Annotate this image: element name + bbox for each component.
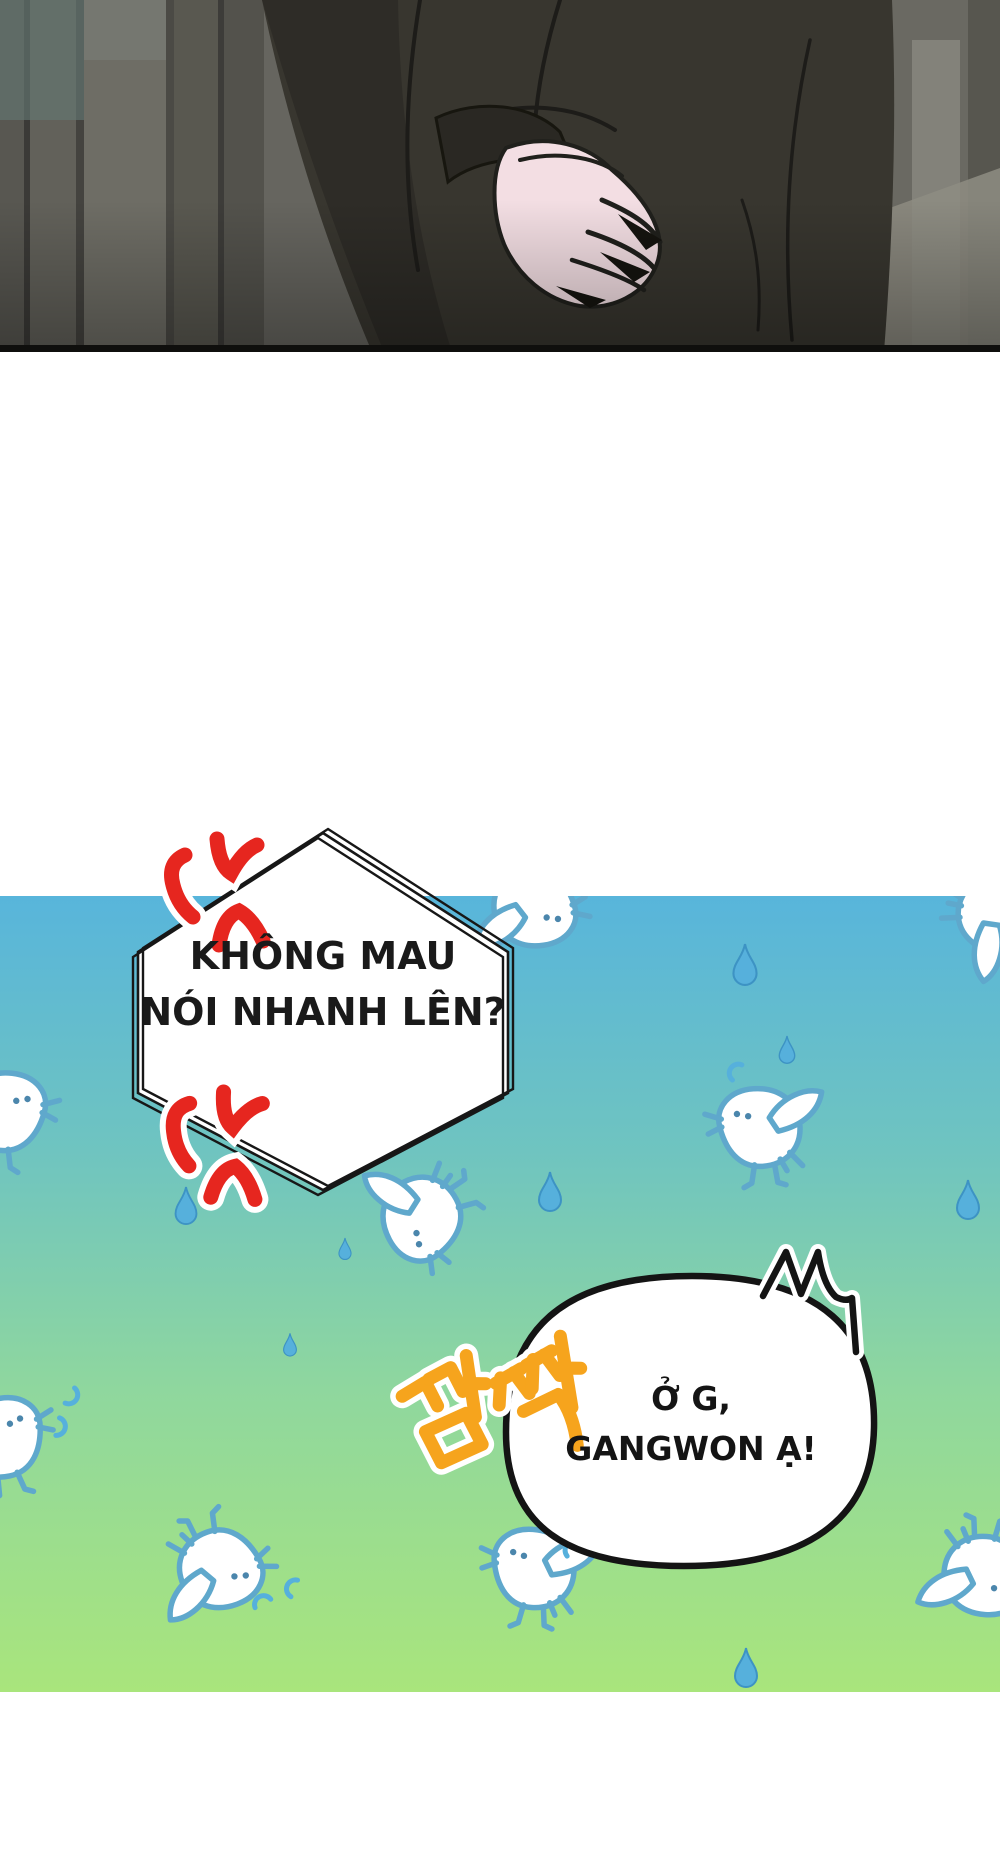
comic-page: KHÔNG MAU NÓI NHANH LÊN? Ở G, GANGWON Ạ! [0,0,1000,1867]
bottom-panel-top-border [0,890,1000,896]
rounded-bubble-line-2: GANGWON Ạ! [505,1424,877,1474]
rounded-bubble-text: Ở G, GANGWON Ạ! [505,1374,877,1474]
hexagon-bubble-line-1: KHÔNG MAU [138,928,508,984]
top-panel-border [0,345,1000,352]
hexagon-bubble-line-2: NÓI NHANH LÊN? [138,984,508,1040]
hexagon-bubble-text: KHÔNG MAU NÓI NHANH LÊN? [138,928,508,1040]
top-panel-illustration [0,0,1000,352]
rounded-bubble-line-1: Ở G, [505,1374,877,1424]
bottom-panel-bottom-border [0,1692,1000,1698]
